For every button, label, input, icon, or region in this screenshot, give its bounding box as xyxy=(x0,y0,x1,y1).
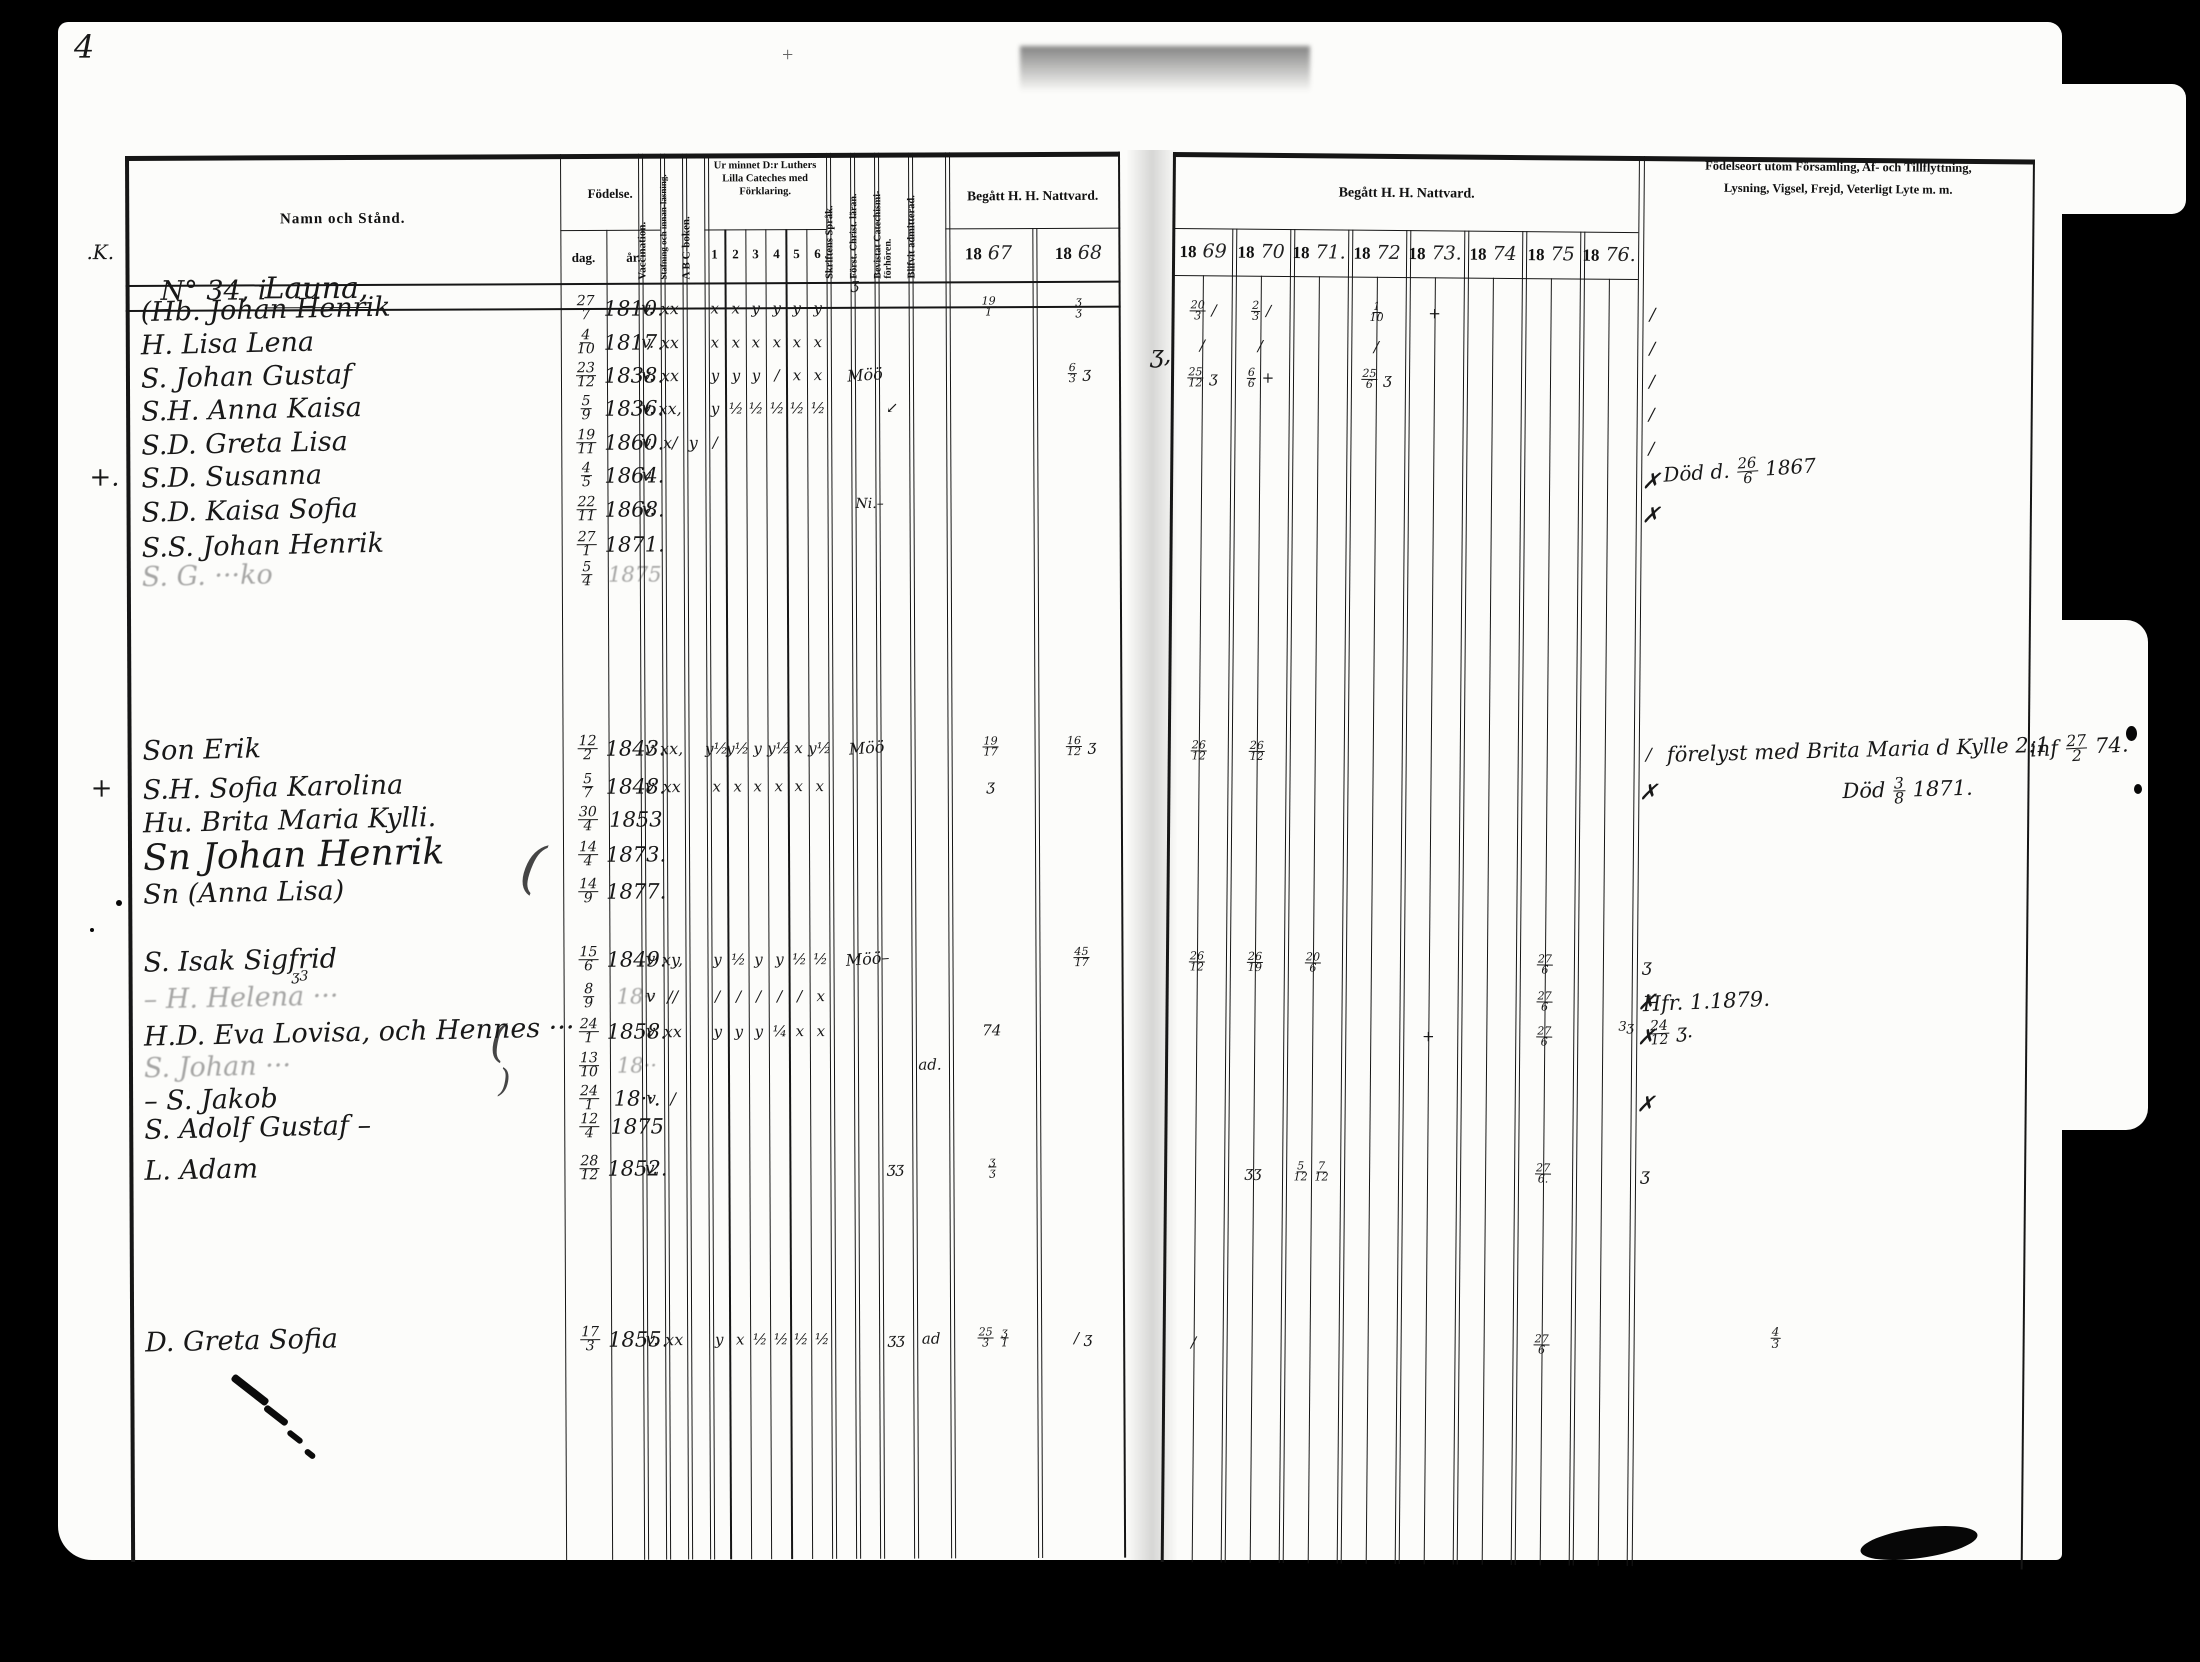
grid-line-vertical xyxy=(1308,276,1320,1563)
communion-mark-1873: + xyxy=(1428,304,1441,322)
notes-margin-mark: ʒ xyxy=(1642,956,1652,976)
communion-year-cell: 18 70 xyxy=(1237,241,1284,263)
grid-line-vertical xyxy=(1192,275,1204,1562)
grid-line-vertical xyxy=(1482,278,1494,1565)
ink-speck xyxy=(90,928,94,932)
communion-mark-1875: 276 xyxy=(1532,1334,1550,1356)
year-handwritten: 76. xyxy=(1599,244,1635,266)
year-printed: 18 xyxy=(1292,243,1309,262)
notes-margin-mark: / xyxy=(1649,405,1655,425)
scribble: ʒ, xyxy=(1150,340,1171,368)
notes-margin-mark: / xyxy=(1646,745,1652,765)
year-handwritten: 74 xyxy=(1486,243,1516,265)
year-printed: 18 xyxy=(1353,244,1370,263)
communion-mark-1870: 66 + xyxy=(1246,368,1275,390)
year-handwritten: 69 xyxy=(1196,240,1226,262)
communion-mark-1870: 2619 xyxy=(1246,952,1264,974)
communion-year-cell: 18 73. xyxy=(1408,242,1461,264)
year-printed: 18 xyxy=(1469,245,1486,264)
year-handwritten: 72 xyxy=(1370,242,1400,264)
communion-mark-1872: 256 ʒ xyxy=(1360,369,1392,391)
year-handwritten: 75 xyxy=(1544,243,1574,265)
grid-line-vertical xyxy=(1540,278,1552,1565)
communion-year-cell: 18 75 xyxy=(1527,243,1574,265)
communion-year-cell: 18 69 xyxy=(1179,240,1226,262)
notes-margin-mark: ✗ xyxy=(1636,1092,1655,1117)
ink-speck xyxy=(2134,784,2142,794)
communion-mark-1869: 2612 xyxy=(1190,740,1208,762)
grid-line-horizontal xyxy=(1173,152,2035,164)
grid-line-vertical xyxy=(1424,277,1436,1564)
communion-year-cell: 18 71. xyxy=(1292,241,1345,263)
grid-line-vertical xyxy=(2021,160,2036,1570)
communion-year-cell: 18 72 xyxy=(1353,242,1400,264)
communion-mark-1875: 276. xyxy=(1534,1163,1552,1185)
year-printed: 18 xyxy=(1237,243,1254,262)
notes-header-line2: Lysning, Vigsel, Frejd, Veterligt Lyte m… xyxy=(1642,180,2035,198)
scanned-ledger-spread: + 4 Namn och Stånd. Födelse. dag. år. Va… xyxy=(0,0,2200,1653)
communion-mark-1870: 23 / xyxy=(1250,301,1271,323)
communion-mark-1871: 206 xyxy=(1304,952,1322,974)
moved-note: Hfr. 1.1879. xyxy=(1642,987,1770,1017)
communion-mark-1870: / xyxy=(1258,337,1263,355)
column-header-communion-right: Begått H. H. Nattvard. xyxy=(1175,184,1639,204)
year-printed: 18 xyxy=(1179,242,1196,261)
communion-mark-1872: 110 xyxy=(1368,302,1384,324)
year-printed: 18 xyxy=(1408,244,1425,263)
date-note: 43 xyxy=(1770,1327,1782,1350)
year-printed: 18 xyxy=(1527,245,1544,264)
communion-year-cell: 18 74 xyxy=(1469,243,1516,265)
communion-mark-1869: 2612 xyxy=(1188,951,1206,973)
notes-margin-mark: ʒ xyxy=(1640,1165,1650,1185)
communion-mark-1869: / xyxy=(1200,336,1205,354)
year-printed: 18 xyxy=(1582,246,1599,265)
notes-margin-mark: ✗ xyxy=(1642,469,1661,494)
communion-mark-1870: 2612 xyxy=(1248,741,1266,763)
death-note: Död d. 266 1867 xyxy=(1663,453,1817,490)
grid-line-vertical xyxy=(1598,279,1610,1566)
communion-mark-1869: 2512 ʒ xyxy=(1186,367,1218,389)
communion-mark-1875: 276 xyxy=(1536,954,1554,976)
communion-mark-1870: ʒʒ xyxy=(1245,1163,1262,1181)
notes-margin-mark: / xyxy=(1648,439,1654,459)
communion-mark-1871: 512 712 xyxy=(1292,1161,1329,1183)
grid-line-vertical xyxy=(1366,277,1378,1564)
communion-mark-1875: 276 xyxy=(1535,1026,1553,1048)
scribble: 3ʒ xyxy=(1618,1020,1634,1035)
death-note: Död 38 1871. xyxy=(1842,774,1973,807)
year-handwritten: 71. xyxy=(1309,241,1345,263)
year-handwritten: 70 xyxy=(1254,241,1284,263)
notes-margin-mark: / xyxy=(1649,372,1655,392)
communion-mark-1875: 276 xyxy=(1535,991,1553,1013)
communion-mark-1873: + xyxy=(1422,1027,1435,1045)
communion-mark-1869: / xyxy=(1191,1333,1196,1351)
year-handwritten: 73. xyxy=(1425,242,1461,264)
notes-margin-mark: ✗ xyxy=(1639,780,1658,805)
communion-mark-1869: 203 / xyxy=(1189,300,1217,322)
communion-year-cell: 18 76. xyxy=(1582,244,1635,266)
right-page: Begått H. H. Nattvard. Födelseort utom F… xyxy=(0,0,2200,1662)
date-note: 2412 ʒ. xyxy=(1648,1019,1694,1048)
banns-note: förelyst med Brita Maria d Kylle 2:1 xyxy=(1667,733,2050,767)
communion-mark-1872: / xyxy=(1374,338,1379,356)
notes-margin-mark: ✗ xyxy=(1642,503,1661,528)
grid-line-vertical xyxy=(1250,276,1262,1563)
notes-margin-mark: / xyxy=(1650,305,1656,325)
notes-margin-mark: / xyxy=(1649,339,1655,359)
margin-note: inf 272 74. xyxy=(2029,731,2129,766)
ink-speck xyxy=(116,900,122,906)
